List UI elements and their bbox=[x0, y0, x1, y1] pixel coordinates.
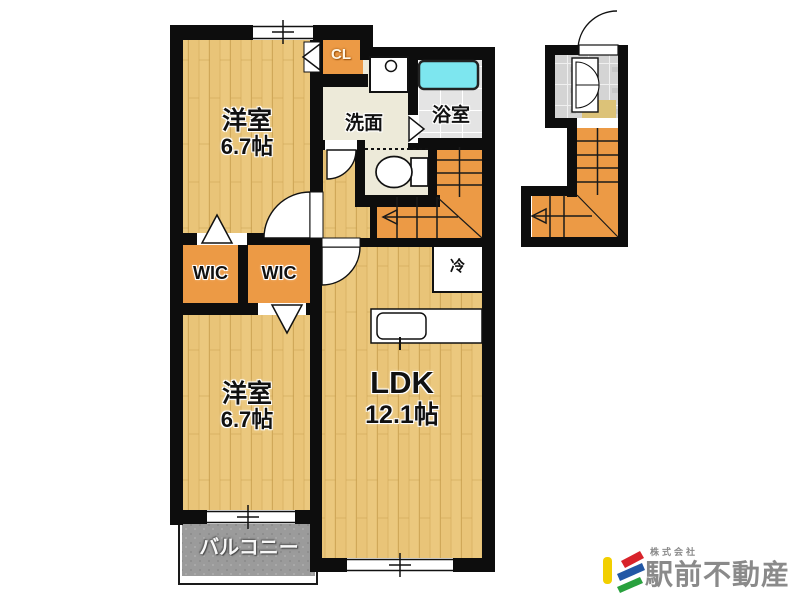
washing-machine bbox=[370, 57, 408, 92]
bedroom-bottom-size: 6.7帖 bbox=[177, 408, 317, 433]
wall-left bbox=[170, 25, 183, 525]
ldk-size: 12.1帖 bbox=[332, 401, 472, 429]
kitchen-sink bbox=[377, 313, 426, 339]
wall-outside-stairs-bottom bbox=[521, 237, 628, 247]
wall-entry-right bbox=[618, 45, 628, 247]
wall-entry-bottom bbox=[545, 118, 577, 128]
washroom-label: 洗面 bbox=[322, 113, 406, 134]
ldk-label: LDK 12.1帖 bbox=[332, 366, 472, 429]
company-logo-mark bbox=[603, 551, 645, 593]
balcony-label: バルコニー bbox=[186, 537, 312, 559]
bedroom-top-label: 洋室 6.7帖 bbox=[177, 107, 317, 160]
bathtub bbox=[419, 61, 478, 89]
wall-entry-left bbox=[545, 45, 555, 128]
logo-bar-yellow bbox=[603, 557, 612, 584]
wall-cl-bottom bbox=[310, 74, 368, 87]
entrance-door bbox=[578, 11, 618, 55]
bathroom-label: 浴室 bbox=[408, 105, 494, 126]
bedroom-top-size: 6.7帖 bbox=[177, 135, 317, 160]
floorplan-drawing bbox=[0, 0, 800, 600]
logo-bar-blue bbox=[617, 563, 645, 581]
refrigerator-label: 冷 bbox=[433, 259, 482, 276]
bedroom-top-name: 洋室 bbox=[222, 107, 272, 135]
bedroom-bottom-label: 洋室 6.7帖 bbox=[177, 380, 317, 433]
company-name: 駅前不動産 bbox=[645, 553, 797, 593]
entry-inner-door bbox=[572, 58, 599, 112]
ldk-name: LDK bbox=[370, 365, 434, 400]
closet-cl-label: CL bbox=[318, 47, 364, 64]
wall-wic-divider bbox=[238, 240, 248, 308]
bedroom-bottom-name: 洋室 bbox=[222, 380, 272, 408]
wic-left-label: WIC bbox=[183, 263, 238, 283]
wall-outside-stairs-left bbox=[567, 128, 577, 197]
wic-right-label: WIC bbox=[248, 263, 310, 283]
wall-hall-stairs-divider bbox=[370, 197, 377, 247]
floorplan-page: 洋室 6.7帖 洗面 浴室 CL WIC WIC 冷 洋室 6.7帖 LDK 1… bbox=[0, 0, 800, 600]
